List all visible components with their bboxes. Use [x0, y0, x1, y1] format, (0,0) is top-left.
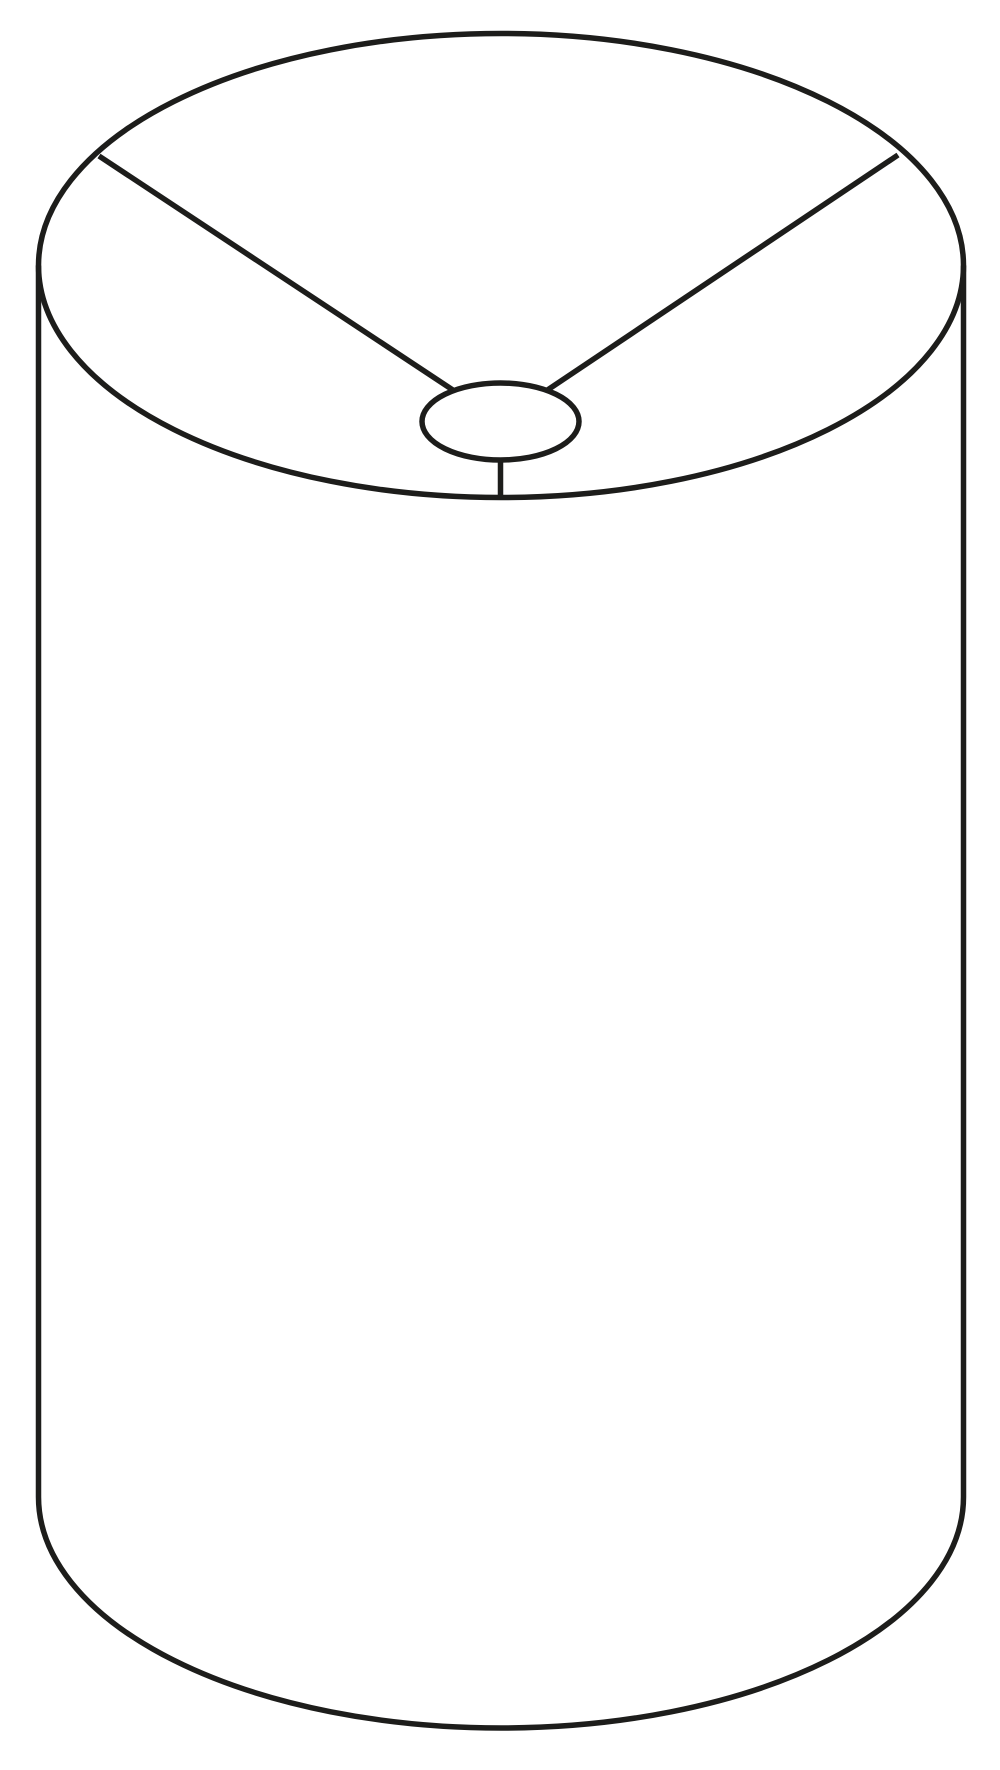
bottom-rim-arc [39, 1497, 964, 1728]
fitter-ring [422, 383, 579, 460]
spider-spoke-left [99, 156, 501, 422]
lampshade-line-art [0, 0, 1000, 1770]
spider-spoke-right [501, 155, 899, 422]
lampshade-illustration [0, 0, 1000, 1770]
